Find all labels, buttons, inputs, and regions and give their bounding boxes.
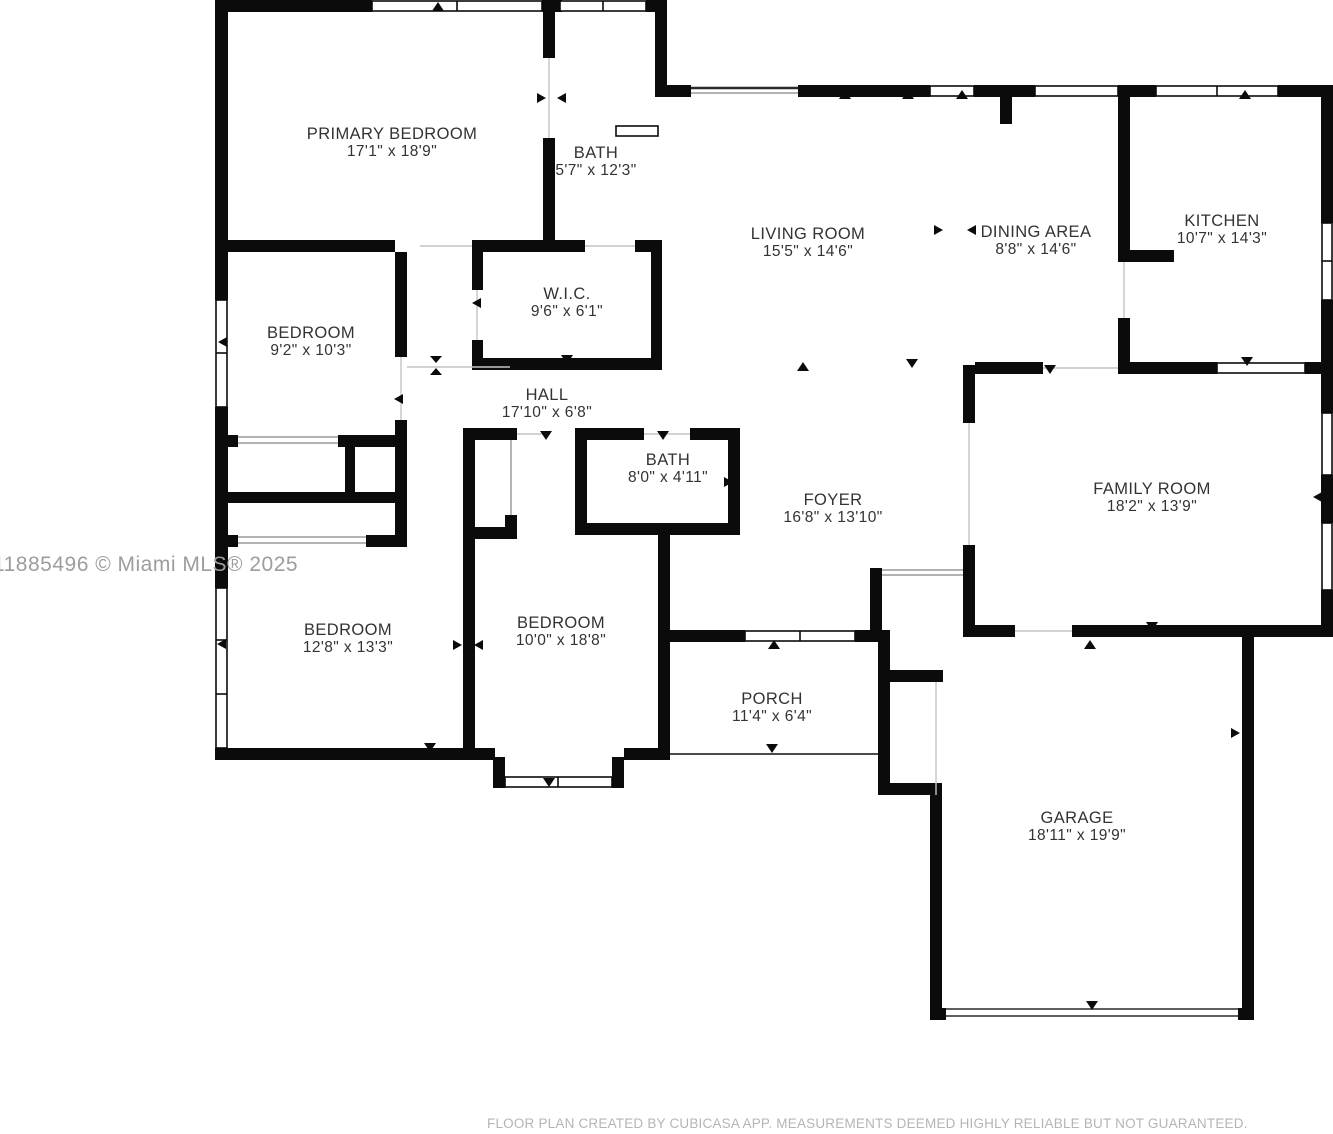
room-name: KITCHEN [1177,212,1267,230]
room-label-living-room: LIVING ROOM 15'5" x 14'6" [751,225,865,261]
room-dimensions: 8'0" x 4'11" [628,469,708,487]
room-label-foyer: FOYER 16'8" x 13'10" [783,491,882,527]
room-dimensions: 11'4" x 6'4" [732,708,812,726]
room-name: PORCH [732,690,812,708]
room-label-family-room: FAMILY ROOM 18'2" x 13'9" [1093,480,1210,516]
room-dimensions: 12'8" x 13'3" [303,639,393,657]
room-label-porch: PORCH 11'4" x 6'4" [732,690,812,726]
room-dimensions: 18'11" x 19'9" [1028,827,1126,845]
room-name: DINING AREA [981,223,1092,241]
room-name: W.I.C. [531,285,603,303]
room-dimensions: 10'7" x 14'3" [1177,230,1267,248]
room-name: GARAGE [1028,809,1126,827]
room-name: HALL [502,386,592,404]
room-dimensions: 17'1" x 18'9" [307,143,477,161]
room-name: BEDROOM [303,621,393,639]
room-name: BATH [628,451,708,469]
room-name: BEDROOM [267,324,355,342]
room-name: FOYER [783,491,882,509]
room-label-bedroom-left: BEDROOM 12'8" x 13'3" [303,621,393,657]
room-name: LIVING ROOM [751,225,865,243]
room-label-bath-hall: BATH 8'0" x 4'11" [628,451,708,487]
door-thresholds-layer [401,58,1124,795]
room-label-dining-area: DINING AREA 8'8" x 14'6" [981,223,1092,259]
room-label-primary-bedroom: PRIMARY BEDROOM 17'1" x 18'9" [307,125,477,161]
room-label-garage: GARAGE 18'11" x 19'9" [1028,809,1126,845]
cubicasa-disclaimer: FLOOR PLAN CREATED BY CUBICASA APP. MEAS… [487,1116,1248,1131]
room-name: BATH [555,144,636,162]
room-label-hall: HALL 17'10" x 6'8" [502,386,592,422]
room-dimensions: 5'7" x 12'3" [555,162,636,180]
windows-layer [216,1,1332,787]
room-label-bedroom-small: BEDROOM 9'2" x 10'3" [267,324,355,360]
room-dimensions: 9'2" x 10'3" [267,342,355,360]
mls-watermark: 11885496 © Miami MLS® 2025 [0,553,298,577]
room-dimensions: 15'5" x 14'6" [751,243,865,261]
room-dimensions: 8'8" x 14'6" [981,241,1092,259]
room-dimensions: 18'2" x 13'9" [1093,498,1210,516]
floor-plan-page: PRIMARY BEDROOM 17'1" x 18'9" BATH 5'7" … [0,0,1333,1134]
room-label-wic: W.I.C. 9'6" x 6'1" [531,285,603,321]
room-label-bedroom-middle: BEDROOM 10'0" x 18'8" [516,614,606,650]
room-name: BEDROOM [516,614,606,632]
room-name: FAMILY ROOM [1093,480,1210,498]
room-label-kitchen: KITCHEN 10'7" x 14'3" [1177,212,1267,248]
room-dimensions: 10'0" x 18'8" [516,632,606,650]
room-label-bath-primary: BATH 5'7" x 12'3" [555,144,636,180]
room-name: PRIMARY BEDROOM [307,125,477,143]
room-dimensions: 16'8" x 13'10" [783,509,882,527]
room-dimensions: 9'6" x 6'1" [531,303,603,321]
room-dimensions: 17'10" x 6'8" [502,404,592,422]
